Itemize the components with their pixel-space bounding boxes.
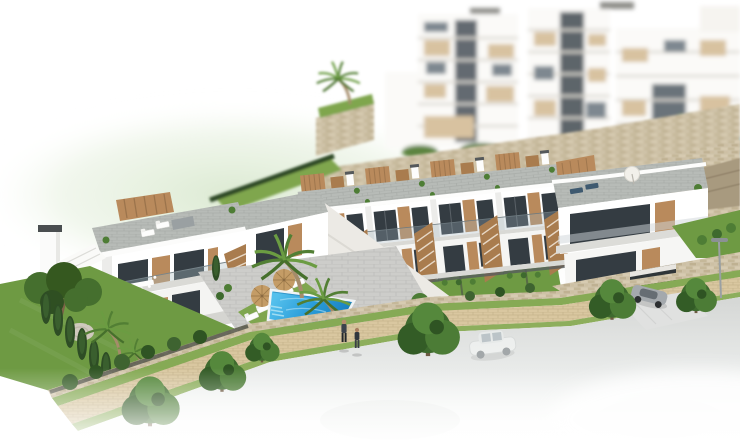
apartment-tower [528, 8, 610, 148]
bottom-fade [0, 368, 740, 445]
apartment-tower [418, 14, 518, 148]
architectural-render: Aerial 3D architectural rendering of a h… [0, 0, 740, 445]
townhouse-unit [426, 155, 505, 288]
upper-terrace-garden [316, 62, 374, 156]
tan-umbrella [273, 269, 295, 291]
render-canvas [0, 0, 740, 445]
apartment-wing [385, 72, 419, 148]
